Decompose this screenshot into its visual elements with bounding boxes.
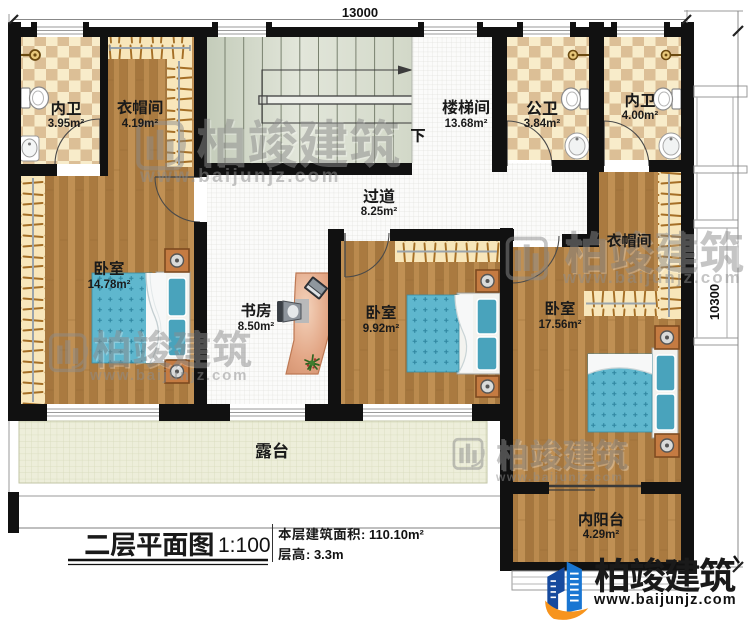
svg-text:4.29m²: 4.29m² — [583, 529, 620, 541]
svg-text:17.56m²: 17.56m² — [539, 319, 582, 331]
svg-text:9.92m²: 9.92m² — [363, 323, 400, 335]
svg-text:3.84m²: 3.84m² — [524, 118, 561, 130]
svg-text:13000: 13000 — [342, 5, 378, 20]
svg-text:14.78m²: 14.78m² — [88, 279, 131, 291]
svg-text:4.19m²: 4.19m² — [122, 118, 159, 130]
svg-text:www.baijunjz.com: www.baijunjz.com — [89, 367, 248, 384]
svg-text:10300: 10300 — [707, 284, 722, 320]
svg-text:: 3.3m: : 3.3m — [306, 547, 344, 562]
svg-text:8.25m²: 8.25m² — [361, 206, 398, 218]
svg-text:: 110.10m²: : 110.10m² — [361, 527, 425, 542]
svg-text:1:100: 1:100 — [218, 534, 271, 557]
svg-text:www.baijunjz.com: www.baijunjz.com — [562, 268, 742, 287]
svg-text:www.baijunjz.com: www.baijunjz.com — [593, 592, 737, 608]
svg-text:www.baijunjz.com: www.baijunjz.com — [139, 166, 341, 187]
svg-text:3.95m²: 3.95m² — [48, 118, 85, 130]
svg-text:www.baijunjz.com: www.baijunjz.com — [495, 470, 624, 484]
svg-text:4.00m²: 4.00m² — [622, 110, 659, 122]
svg-text:8.50m²: 8.50m² — [238, 321, 275, 333]
svg-text:13.68m²: 13.68m² — [445, 118, 488, 130]
